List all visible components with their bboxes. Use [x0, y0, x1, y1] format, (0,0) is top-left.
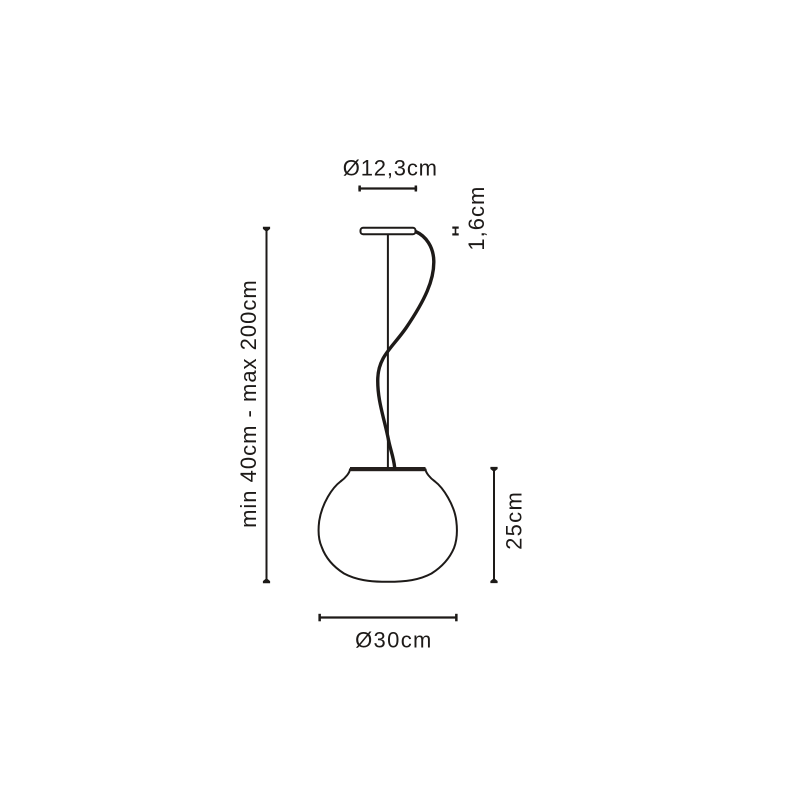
svg-text:min 40cm - max 200cm: min 40cm - max 200cm — [236, 279, 261, 528]
svg-text:25cm: 25cm — [502, 491, 527, 550]
svg-text:Ø12,3cm: Ø12,3cm — [343, 156, 438, 181]
svg-text:Ø30cm: Ø30cm — [355, 628, 433, 653]
svg-text:1,6cm: 1,6cm — [464, 186, 489, 251]
